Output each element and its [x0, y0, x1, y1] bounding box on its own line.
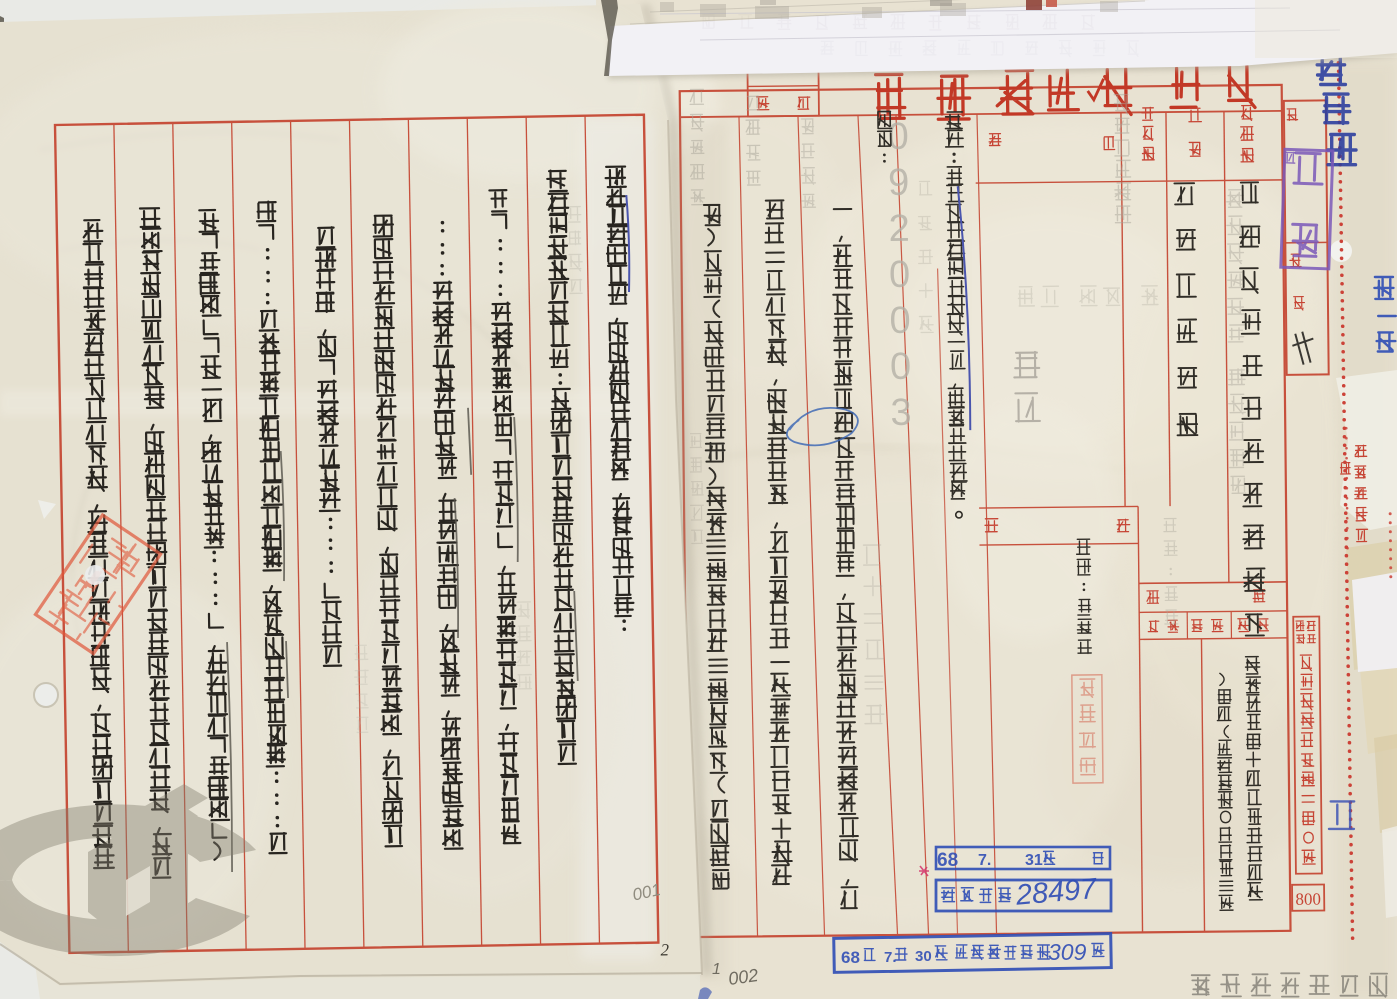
svg-text:3: 3 [890, 392, 912, 434]
svg-text:68: 68 [841, 948, 860, 967]
svg-text:7.: 7. [978, 852, 991, 869]
svg-text:31: 31 [1025, 852, 1043, 869]
svg-text:1: 1 [712, 961, 721, 978]
svg-text:0: 0 [890, 346, 912, 388]
svg-text:2: 2 [660, 940, 669, 959]
svg-text:68: 68 [937, 850, 958, 871]
svg-text:002: 002 [727, 965, 760, 989]
svg-text:0: 0 [889, 300, 911, 342]
svg-text:2: 2 [888, 208, 910, 250]
svg-text:7.: 7. [884, 949, 897, 966]
svg-text:30: 30 [915, 948, 932, 965]
svg-text:0: 0 [889, 254, 911, 296]
svg-text:800: 800 [1295, 890, 1321, 909]
svg-text:9: 9 [888, 162, 910, 204]
svg-text:309: 309 [1048, 939, 1087, 965]
